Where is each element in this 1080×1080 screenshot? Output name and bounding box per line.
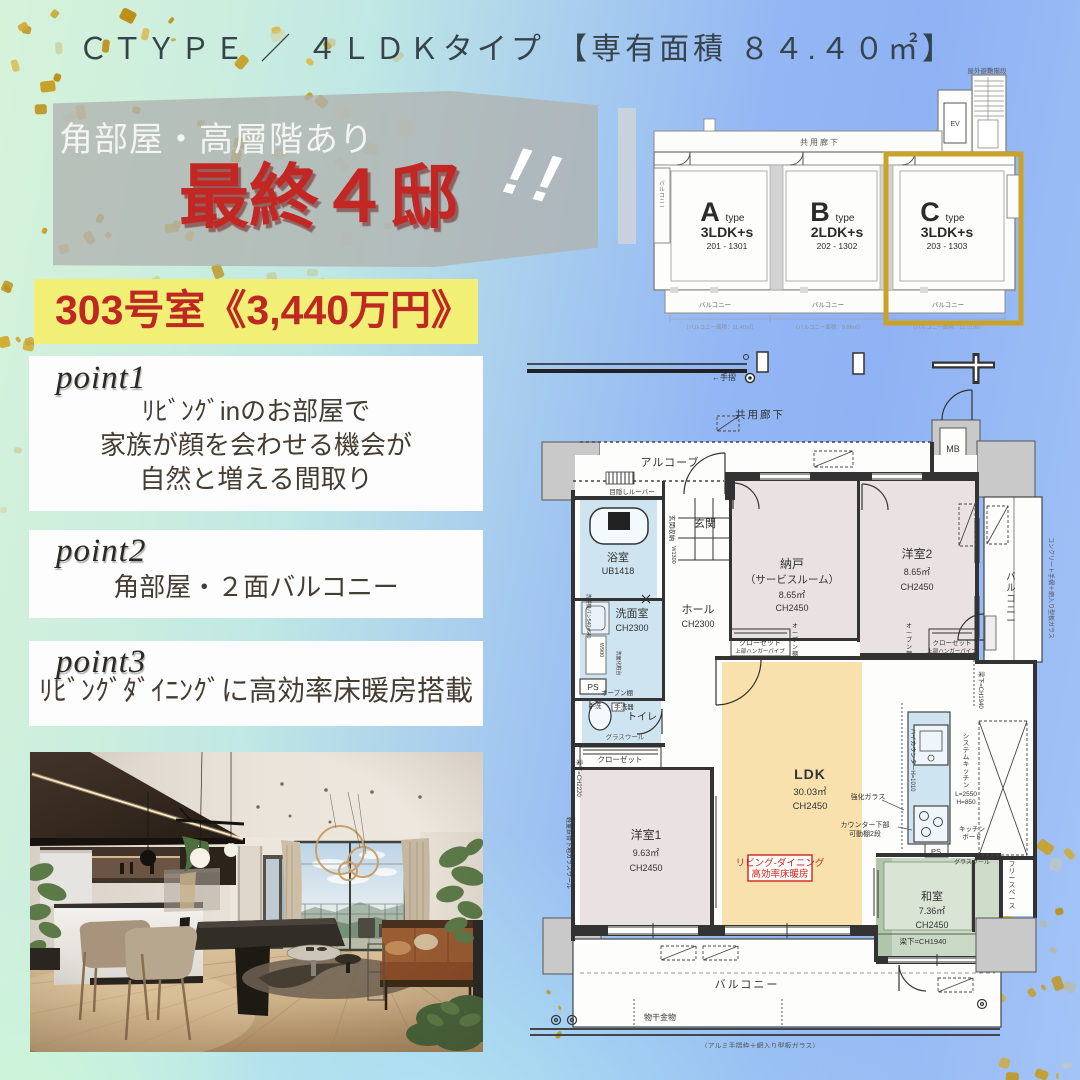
svg-text:強化ガラス: 強化ガラス — [851, 792, 886, 801]
svg-text:MB: MB — [946, 444, 960, 454]
svg-text:クローゼット: クローゼット — [598, 754, 643, 764]
svg-text:高効率床暖房: 高効率床暖房 — [751, 868, 808, 880]
svg-text:カウンター下部: カウンター下部 — [841, 820, 890, 829]
svg-text:ハイカウンターH=1010: ハイカウンターH=1010 — [909, 728, 917, 792]
svg-text:バルコニー: バルコニー — [715, 978, 780, 991]
svg-text:3LDK+s: 3LDK+s — [921, 224, 974, 240]
svg-text:8.65㎡: 8.65㎡ — [904, 567, 931, 577]
svg-text:202 - 1302: 202 - 1302 — [817, 241, 858, 251]
svg-text:バルコニー: バルコニー — [812, 301, 844, 309]
svg-text:アルコーブ: アルコーブ — [640, 455, 699, 469]
svg-text:共用廊下: 共用廊下 — [735, 408, 785, 421]
svg-text:リビング-ダイニング: リビング-ダイニング — [736, 857, 825, 869]
svg-text:8.65㎡: 8.65㎡ — [779, 590, 806, 600]
svg-text:3LDK+s: 3LDK+s — [701, 224, 754, 240]
svg-text:オープン棚: オープン棚 — [906, 623, 912, 658]
svg-text:UB1418: UB1418 — [602, 566, 635, 576]
svg-text:トイレ: トイレ — [627, 712, 657, 723]
svg-text:玄関: 玄関 — [694, 516, 716, 530]
svg-text:洗濯機パン540×640: 洗濯機パン540×640 — [585, 594, 592, 639]
svg-text:CH2450: CH2450 — [915, 920, 948, 930]
svg-text:201 - 1301: 201 - 1301 — [707, 241, 748, 251]
svg-text:共用廊下: 共用廊下 — [800, 137, 840, 147]
svg-text:ボード: ボード — [962, 833, 982, 841]
svg-text:玄関収納: 玄関収納 — [668, 515, 677, 541]
svg-text:オープン棚: オープン棚 — [601, 688, 634, 697]
svg-text:type: type — [946, 213, 965, 224]
svg-text:上部ハンガーパイプ: 上部ハンガーパイプ — [735, 647, 785, 655]
svg-text:和室: 和室 — [921, 889, 943, 903]
svg-text:バルコニー: バルコニー — [699, 301, 731, 309]
svg-text:軽量鉄骨下地ガラスウール: 軽量鉄骨下地ガラスウール — [565, 817, 573, 889]
svg-text:梁下=CH2220: 梁下=CH2220 — [575, 759, 583, 797]
svg-text:type: type — [836, 213, 855, 224]
svg-text:バルコニー: バルコニー — [1006, 572, 1016, 627]
svg-text:梁下=CH1940: 梁下=CH1940 — [900, 937, 947, 946]
svg-text:7.36㎡: 7.36㎡ — [919, 906, 946, 916]
svg-text:2LDK+s: 2LDK+s — [811, 224, 864, 240]
svg-text:オープン棚: オープン棚 — [792, 623, 798, 658]
svg-text:W1300: W1300 — [670, 546, 676, 563]
svg-text:納戸: 納戸 — [780, 557, 804, 571]
svg-text:LDK: LDK — [794, 766, 826, 782]
svg-text:B: B — [810, 197, 830, 227]
svg-text:手洗器: 手洗器 — [614, 702, 634, 711]
svg-text:30.03㎡: 30.03㎡ — [793, 787, 827, 798]
svg-text:PS: PS — [587, 682, 599, 692]
svg-text:EV: EV — [950, 121, 960, 128]
svg-text:手洗: 手洗 — [589, 701, 603, 710]
svg-text:203 - 1303: 203 - 1303 — [927, 241, 968, 251]
svg-text:洗面化粧台: 洗面化粧台 — [615, 650, 622, 675]
svg-text:キッチン: キッチン — [959, 825, 985, 833]
svg-text:バルコニー: バルコニー — [932, 301, 964, 309]
svg-text:物干金物: 物干金物 — [644, 1012, 676, 1022]
svg-text:CH2450: CH2450 — [900, 582, 933, 592]
svg-text:type: type — [726, 213, 745, 224]
svg-text:グラスウール: グラスウール — [606, 732, 645, 741]
svg-text:コンクリート手摺＋網入り型板ガラス: コンクリート手摺＋網入り型板ガラス — [1047, 537, 1055, 639]
svg-text:クローゼット: クローゼット — [739, 638, 781, 647]
svg-text:洋室2: 洋室2 — [902, 546, 933, 561]
svg-text:バルコニー: バルコニー — [659, 180, 665, 211]
svg-text:W900: W900 — [598, 643, 604, 657]
svg-text:（アルミ手摺枠＋網入り型板ガラス）: （アルミ手摺枠＋網入り型板ガラス） — [701, 1041, 820, 1048]
svg-text:可動棚2段: 可動棚2段 — [849, 829, 881, 838]
svg-text:洗面室: 洗面室 — [616, 606, 649, 620]
svg-text:（バルコニー面積：9.66㎡）: （バルコニー面積：9.66㎡） — [792, 323, 863, 331]
svg-text:CH2450: CH2450 — [793, 801, 828, 812]
svg-text:9.63㎡: 9.63㎡ — [633, 848, 660, 858]
svg-text:←手摺: ←手摺 — [712, 372, 736, 382]
svg-text:屋外避難階段: 屋外避難階段 — [968, 66, 1008, 75]
svg-text:グラスウール: グラスウール — [954, 858, 990, 866]
svg-text:上部ハンガーパイプ: 上部ハンガーパイプ — [927, 647, 977, 655]
svg-text:（サービスルーム）: （サービスルーム） — [745, 574, 839, 586]
svg-text:洋室1: 洋室1 — [631, 827, 662, 842]
svg-text:目隠しルーバー: 目隠しルーバー — [609, 487, 654, 496]
svg-text:フリースペース: フリースペース — [1009, 860, 1016, 910]
svg-text:CH2300: CH2300 — [681, 619, 714, 629]
svg-text:浴室: 浴室 — [607, 550, 629, 564]
svg-text:A: A — [700, 197, 720, 227]
svg-text:CH2450: CH2450 — [629, 863, 662, 873]
svg-text:CH2300: CH2300 — [615, 623, 648, 633]
svg-text:（バルコニー面積：11.40㎡）: （バルコニー面積：11.40㎡） — [683, 323, 757, 331]
svg-text:CH2450: CH2450 — [775, 603, 808, 613]
svg-text:クローゼット: クローゼット — [933, 638, 972, 647]
svg-text:ホール: ホール — [682, 603, 715, 616]
svg-text:梁下=CH1940: 梁下=CH1940 — [977, 671, 985, 709]
svg-text:C: C — [920, 197, 940, 227]
